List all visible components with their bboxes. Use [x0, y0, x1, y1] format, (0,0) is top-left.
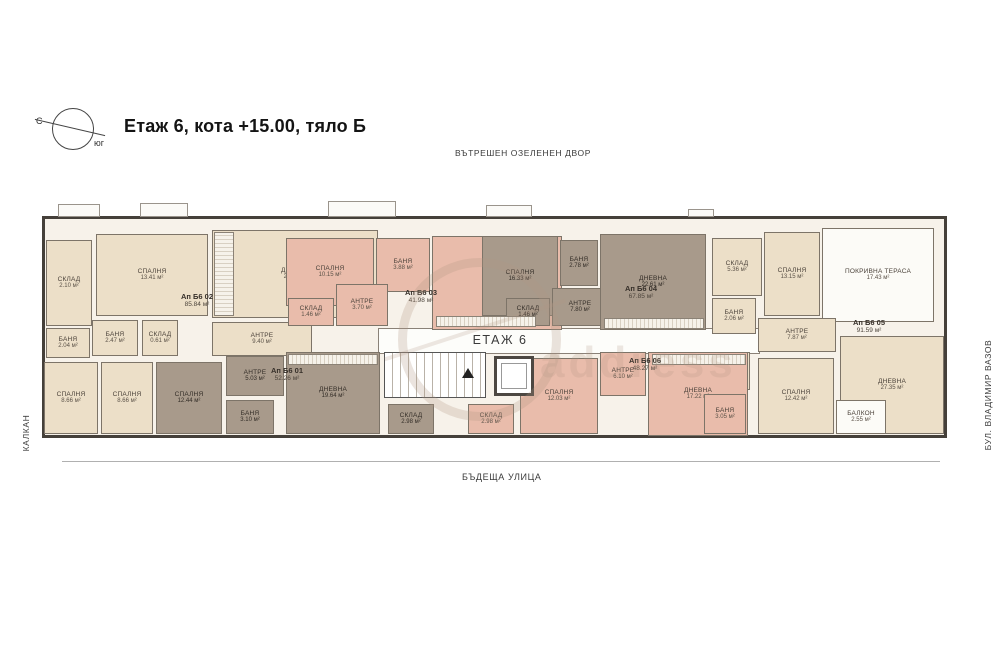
room: БАНЯ 2.04 м²: [46, 328, 90, 358]
kitchen-counter: [604, 318, 704, 329]
room-area: 3.70 м²: [352, 305, 371, 312]
room-area: 17.43 м²: [867, 275, 890, 282]
apartment-area: 91.59 м²: [838, 327, 900, 335]
room-area: 3.88 м²: [393, 265, 412, 272]
room-roof-terrace: ПОКРИВНА ТЕРАСА 17.43 м²: [822, 228, 934, 322]
label-future-street: БЪДЕЩА УЛИЦА: [462, 472, 541, 482]
room-area: 2.98 м²: [481, 419, 500, 426]
balcony-outline: [328, 201, 396, 217]
balcony-outline: [140, 203, 188, 217]
balcony-outline: [58, 204, 100, 217]
room-area: 12.44 м²: [178, 398, 201, 405]
room: БАНЯ 2.06 м²: [712, 298, 756, 334]
room: АНТРЕ 9.40 м²: [212, 322, 312, 356]
room-name: СПАЛНЯ: [175, 391, 204, 398]
room-name: АНТРЕ: [251, 332, 274, 339]
apartment-label: Ап Б6 02 85.84 м²: [162, 292, 232, 310]
elevator-icon: [494, 356, 534, 396]
room: СКЛАД 0.61 м²: [142, 320, 178, 356]
compass-icon: С юг: [36, 106, 106, 156]
room-area: 13.15 м²: [781, 274, 804, 281]
room: АНТРЕ 3.70 м²: [336, 284, 388, 326]
room-area: 2.06 м²: [724, 316, 743, 323]
apartment-id: Ап Б6 03: [392, 288, 450, 297]
room-name: СКЛАД: [58, 276, 81, 283]
room-name: СПАЛНЯ: [545, 389, 574, 396]
room-name: БАНЯ: [106, 331, 125, 338]
balcony-outline: [486, 205, 532, 217]
room-name: БАНЯ: [241, 410, 260, 417]
room-name: АНТРЕ: [786, 328, 809, 335]
room: БАНЯ 3.05 м²: [704, 394, 746, 434]
room-name: БАНЯ: [725, 309, 744, 316]
apartment-label: Ап Б6 03 41.98 м²: [392, 288, 450, 306]
room-name: СПАЛНЯ: [138, 268, 167, 275]
room-name: БАНЯ: [570, 256, 589, 263]
kitchen-counter: [436, 316, 536, 327]
room-name: ДНЕВНА: [319, 386, 347, 393]
room-name: ДНЕВНА: [639, 275, 667, 282]
room-area: 3.05 м²: [715, 414, 734, 421]
apartment-label: Ап Б6 06 48.27 м²: [614, 356, 676, 374]
room-name: СПАЛНЯ: [113, 391, 142, 398]
room: БАНЯ 2.78 м²: [560, 240, 598, 286]
room: СКЛАД 2.98 м²: [468, 404, 514, 434]
room: БАНЯ 3.10 м²: [226, 400, 274, 434]
room-area: 7.80 м²: [570, 307, 589, 314]
room-name: СКЛАД: [726, 260, 749, 267]
room-balcony: БАЛКОН 2.55 м²: [836, 400, 886, 434]
compass-circle: [52, 108, 94, 150]
room: СКЛАД 2.98 м²: [388, 404, 434, 434]
apartment-label: Ап Б6 04 67.85 м²: [610, 284, 672, 302]
room-area: 19.64 м²: [322, 393, 345, 400]
room: СПАЛНЯ 12.42 м²: [758, 358, 834, 434]
stair-direction-arrow: [462, 368, 474, 378]
apartment-area: 85.84 м²: [162, 301, 232, 309]
room: БАНЯ 2.47 м²: [92, 320, 138, 356]
apartment-label: Ап Б6 01 52.26 м²: [252, 366, 322, 384]
room-area: 12.42 м²: [785, 396, 808, 403]
room-name: АНТРЕ: [569, 300, 592, 307]
room-name: СКЛАД: [400, 412, 423, 419]
apartment-id: Ап Б6 05: [838, 318, 900, 327]
label-inner-yard: ВЪТРЕШЕН ОЗЕЛЕНЕН ДВОР: [455, 148, 591, 158]
room-name: СКЛАД: [517, 305, 540, 312]
room-area: 2.78 м²: [569, 263, 588, 270]
room-name: СПАЛНЯ: [778, 267, 807, 274]
room-name: СПАЛНЯ: [316, 265, 345, 272]
room-name: ПОКРИВНА ТЕРАСА: [845, 268, 911, 275]
room-area: 8.66 м²: [61, 398, 80, 405]
room-name: БАНЯ: [716, 407, 735, 414]
room-area: 1.46 м²: [301, 312, 320, 319]
room-area: 9.40 м²: [252, 339, 271, 346]
room: СКЛАД 5.36 м²: [712, 238, 762, 296]
apartment-area: 41.98 м²: [392, 297, 450, 305]
room-name: СКЛАД: [300, 305, 323, 312]
label-blvd-vazov: БУЛ. ВЛАДИМИР ВАЗОВ: [983, 335, 993, 455]
room: ДНЕВНА 22.61 м²: [600, 234, 706, 330]
room-name: СПАЛНЯ: [506, 269, 535, 276]
page-title: Етаж 6, кота +15.00, тяло Б: [124, 116, 366, 137]
label-kalkan: КАЛКАН: [21, 393, 31, 473]
apartment-label: Ап Б6 05 91.59 м²: [838, 318, 900, 336]
room-area: 7.87 м²: [787, 335, 806, 342]
room: АНТРЕ 7.87 м²: [758, 318, 836, 352]
room: СПАЛНЯ 13.15 м²: [764, 232, 820, 316]
room-area: 8.66 м²: [117, 398, 136, 405]
room: СКЛАД 1.46 м²: [288, 298, 334, 326]
balcony-outline: [688, 209, 714, 217]
apartment-id: Ап Б6 04: [610, 284, 672, 293]
street-line: [62, 461, 940, 462]
room-area: 16.33 м²: [509, 276, 532, 283]
apartment-id: Ап Б6 01: [252, 366, 322, 375]
room-name: БАНЯ: [394, 258, 413, 265]
room-area: 13.41 м²: [141, 275, 164, 282]
floor-label: ЕТАЖ 6: [440, 333, 560, 347]
room-name: СПАЛНЯ: [57, 391, 86, 398]
room: СКЛАД 2.10 м²: [46, 240, 92, 326]
room-name: АНТРЕ: [351, 298, 374, 305]
room-area: 2.55 м²: [851, 417, 870, 424]
room-area: 2.98 м²: [401, 419, 420, 426]
elevator-cab: [501, 363, 527, 389]
room-name: СКЛАД: [149, 331, 172, 338]
room-area: 2.47 м²: [105, 338, 124, 345]
room-area: 0.61 м²: [150, 338, 169, 345]
compass-south-label: юг: [94, 138, 104, 148]
room-area: 6.10 м²: [613, 374, 632, 381]
room-name: СКЛАД: [480, 412, 503, 419]
room: СПАЛНЯ 8.66 м²: [101, 362, 153, 434]
room-name: БАНЯ: [59, 336, 78, 343]
room: СПАЛНЯ 12.44 м²: [156, 362, 222, 434]
room-area: 3.10 м²: [240, 417, 259, 424]
room-area: 12.03 м²: [548, 396, 571, 403]
room-name: БАЛКОН: [847, 410, 875, 417]
apartment-id: Ап Б6 02: [162, 292, 232, 301]
room-area: 27.35 м²: [881, 385, 904, 392]
apartment-area: 48.27 м²: [614, 365, 676, 373]
room-name: ДНЕВНА: [878, 378, 906, 385]
corridor: [378, 328, 760, 354]
room-area: 2.10 м²: [59, 283, 78, 290]
room: СПАЛНЯ 8.66 м²: [44, 362, 98, 434]
apartment-id: Ап Б6 06: [614, 356, 676, 365]
room-name: СПАЛНЯ: [782, 389, 811, 396]
floor-plan-page: С юг Етаж 6, кота +15.00, тяло Б ВЪТРЕШЕ…: [0, 0, 1000, 666]
apartment-area: 52.26 м²: [252, 375, 322, 383]
room-area: 5.36 м²: [727, 267, 746, 274]
apartment-area: 67.85 м²: [610, 293, 672, 301]
room-area: 2.04 м²: [58, 343, 77, 350]
room-area: 10.15 м²: [319, 272, 342, 279]
kitchen-counter: [288, 354, 378, 365]
